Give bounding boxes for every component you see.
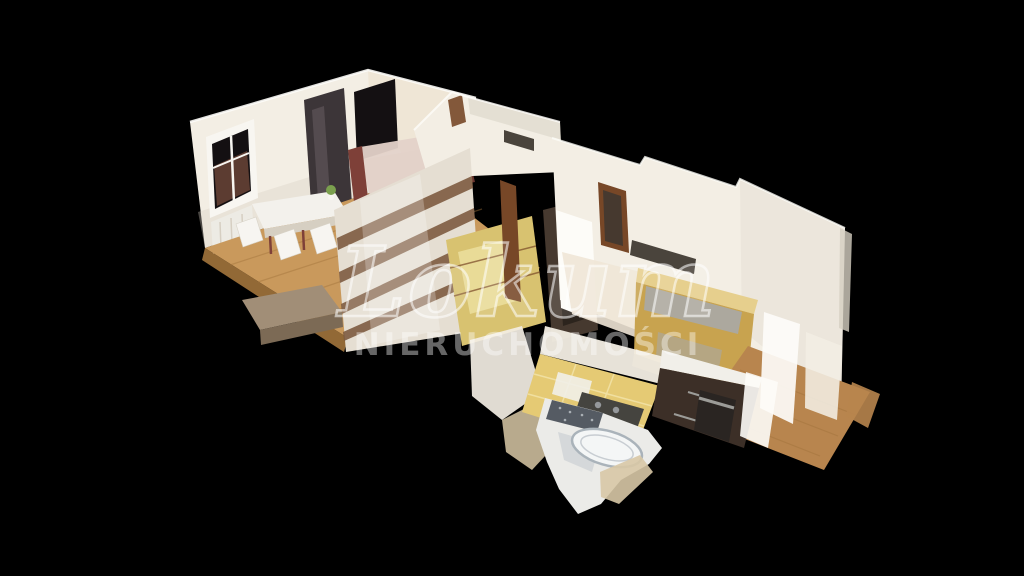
apartment-scan-render bbox=[0, 0, 1024, 576]
bedroom-door-dark bbox=[603, 190, 623, 246]
stove-burner bbox=[595, 402, 601, 408]
table-leg bbox=[270, 236, 271, 254]
mosaic-dot bbox=[559, 407, 562, 410]
scan-fragment-white bbox=[805, 332, 842, 420]
dollhouse-3d-view[interactable]: Lokum NIERUCHOMOŚCI bbox=[0, 0, 1024, 576]
mosaic-dot bbox=[581, 414, 584, 417]
table-leg bbox=[303, 230, 304, 250]
wall-right-edge bbox=[839, 228, 852, 332]
mosaic-dot bbox=[564, 419, 567, 422]
stove-burner bbox=[613, 407, 619, 413]
plant bbox=[326, 185, 336, 195]
mosaic-dot bbox=[591, 419, 594, 422]
mosaic-dot bbox=[569, 411, 572, 414]
